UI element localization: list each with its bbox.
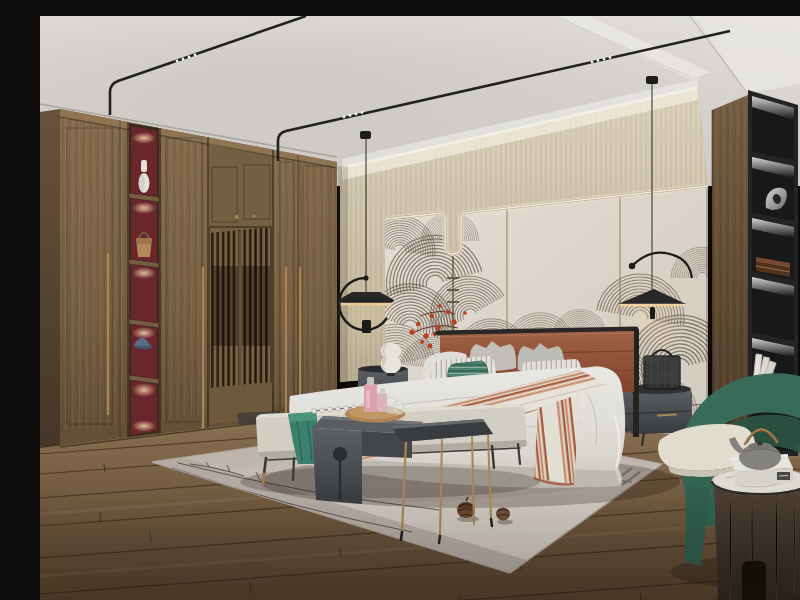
bedroom-render [40,16,800,600]
vignette [40,16,800,600]
